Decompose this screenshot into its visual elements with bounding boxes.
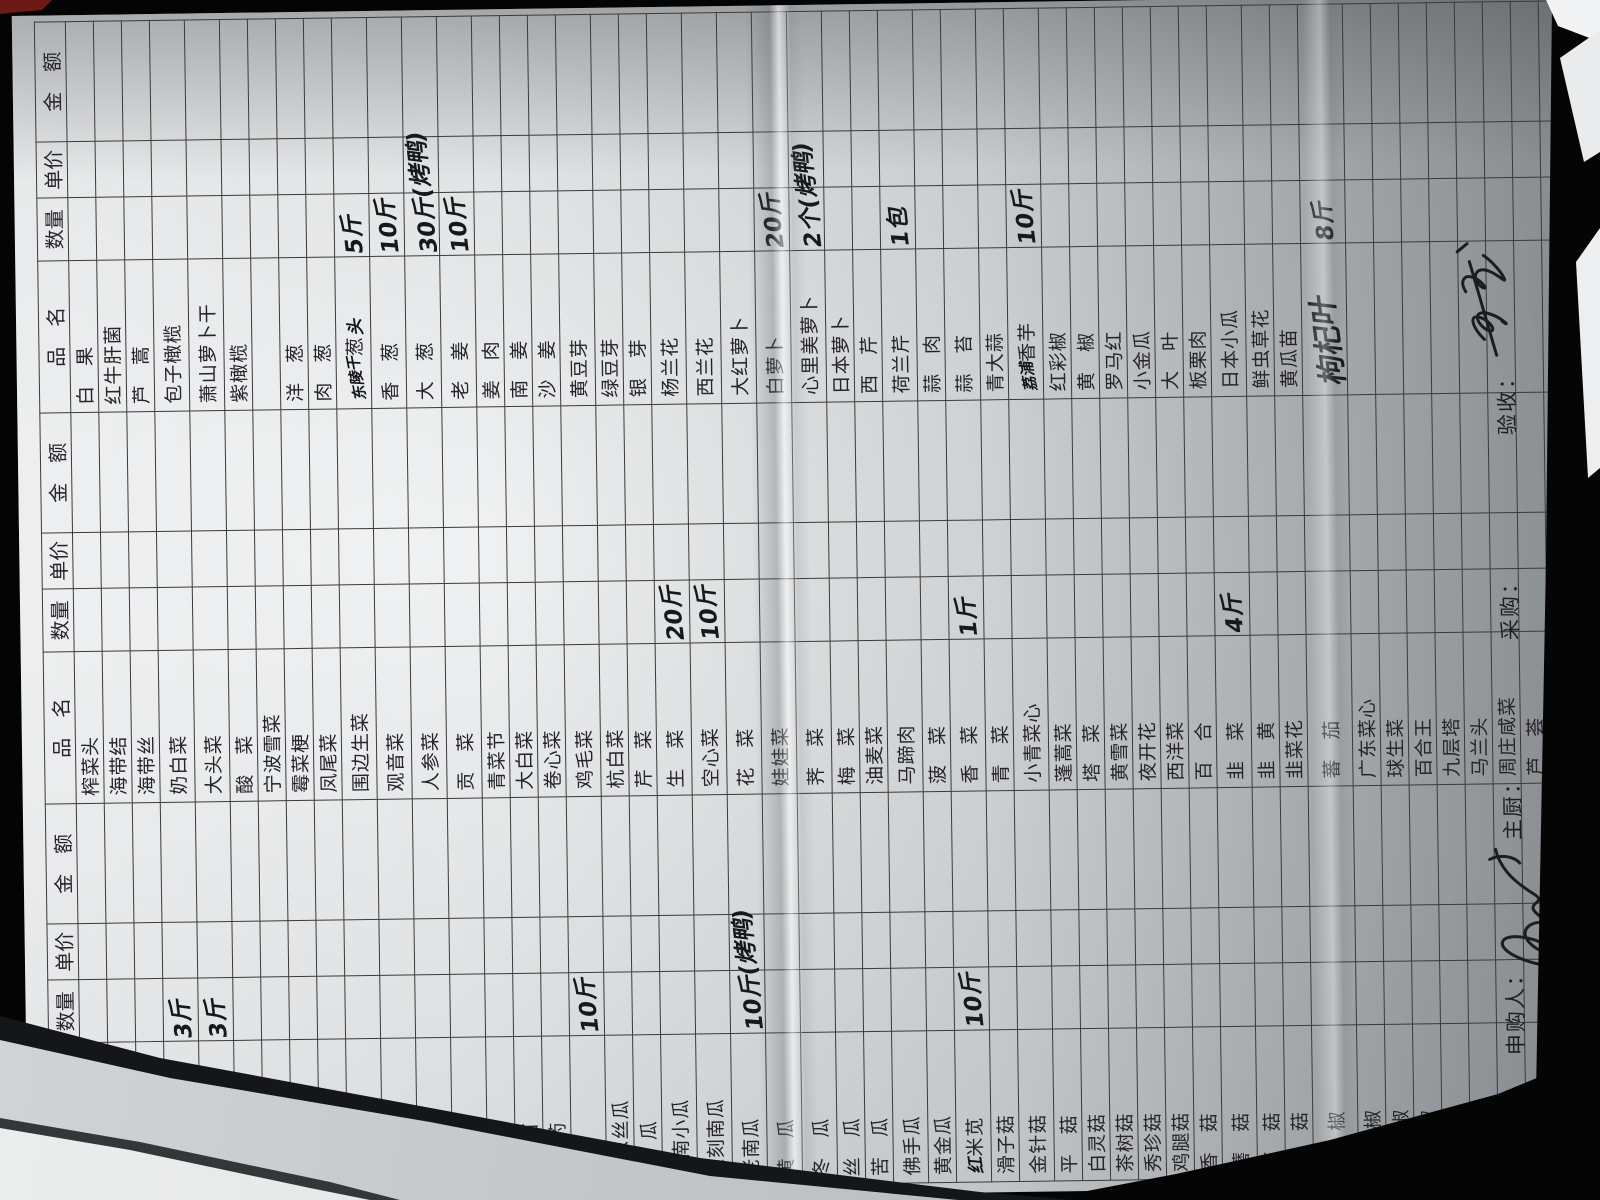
cell-price-left-11 [379,919,415,975]
cell-price-middle-11 [373,528,409,584]
cell-price-left-43 [1383,905,1412,961]
item-name: 红牛肝菌 [103,324,125,404]
cell-name-right-4: 包子橄榄 [153,259,190,411]
cell-price-left-40 [1282,906,1311,962]
cell-name-middle-16: 卷心菜 [536,645,566,797]
item-name: 刀豆 [356,1105,378,1183]
footer-label-inspector: 验收： [1491,366,1522,435]
cell-amount-middle-17 [561,405,598,525]
cell-price-right-19 [620,134,649,190]
cell-name-middle-36: 西洋菜 [1159,636,1189,788]
cell-qty-right-31: 10斤 [1006,184,1042,247]
cell-price-left-24 [799,913,835,969]
cell-name-middle-46: 马兰头 [1463,632,1493,784]
cell-price-left-39 [1254,907,1283,963]
cell-qty-right-24: 2个(烤鸭) [789,187,825,250]
footer-label-purchaser: 采购： [1494,571,1525,640]
cell-price-right-26 [851,130,880,186]
item-name: 老南瓜 [741,1118,763,1178]
cell-qty-left-34 [1108,965,1137,1028]
cell-price-middle-13 [443,527,479,583]
cell-amount-left-13 [447,798,484,918]
cell-qty-left-24 [800,969,836,1032]
cell-amount-middle-30 [981,400,1011,520]
cell-qty-left-23 [765,970,801,1033]
cell-qty-right-11: 10斤 [369,193,405,256]
cell-name-right-20: 杨兰花 [650,252,687,404]
cell-price-middle-20 [653,524,689,580]
cell-amount-right-9 [303,18,333,138]
cell-amount-middle-1 [71,412,101,532]
item-name: 大红萝卜 [730,316,752,396]
item-name: 榨菜头 [81,736,103,796]
item-name: 西芹 [859,316,881,394]
cell-qty-middle-29: 1斤 [948,576,984,639]
cell-name-middle-27: 马蹄肉 [886,640,923,792]
item-name: 黄椒 [1076,313,1098,391]
cell-amount-left-29 [951,791,988,911]
cell-qty-left-7 [261,977,290,1040]
cell-qty-right-27: 1包 [880,186,916,249]
cell-name-left-36: 鸡腿菇 [1165,1027,1195,1179]
cell-name-right-33: 黄椒 [1070,246,1100,398]
cell-amount-middle-38 [1212,396,1249,516]
cell-amount-left-44 [1409,785,1439,905]
handwritten-quantity: 8斤 [1302,200,1340,243]
item-name: 夜开花 [1138,721,1160,781]
cell-amount-right-34 [1094,7,1124,127]
item-name: 滑子菇 [996,1114,1018,1174]
cell-qty-left-6 [233,977,262,1040]
item-name: 周庄咸菜 [1497,696,1519,776]
item-name: 鲜虫草花 [1251,308,1273,388]
header-right-amount: 金 额 [34,22,67,142]
cell-name-right-43 [1374,242,1404,394]
cell-qty-left-15 [513,973,542,1036]
cell-name-left-34: 茶树菇 [1109,1028,1139,1180]
item-name: 蒜苔 [954,315,976,393]
cell-amount-right-5 [184,20,221,140]
cell-price-right-10 [333,137,369,193]
item-name: 云南小瓜 [670,1099,692,1179]
cell-qty-left-30 [989,967,1018,1030]
cell-qty-middle-3 [129,587,158,650]
cell-name-left-24: 冬瓜 [801,1032,838,1184]
header-left-amount: 金 额 [45,804,78,924]
cell-amount-middle-39 [1247,396,1277,516]
cell-price-left-2 [106,923,135,979]
cell-name-middle-39: 韭黄 [1250,635,1280,787]
cell-price-middle-7 [254,530,283,586]
cell-name-right-23: 白萝卜 [755,251,792,403]
cell-qty-left-43 [1384,961,1413,1024]
cell-name-left-3: 毛豆米 [136,1041,166,1193]
cell-amount-right-23 [751,12,788,132]
cell-name-right-22: 大红萝卜 [720,251,757,403]
header-left-price: 单价 [47,924,79,980]
cell-price-right-8 [277,138,306,194]
cell-price-middle-23 [758,523,794,579]
cell-price-left-20 [659,915,695,971]
cell-name-middle-33: 塔菜 [1075,637,1105,789]
item-name: 酸缸豆 [240,1125,262,1185]
cell-amount-middle-27 [883,401,920,521]
cell-price-middle-43 [1377,514,1406,570]
item-name: 鸡腿菇 [1171,1112,1193,1172]
cell-amount-left-45 [1437,784,1467,904]
cell-price-middle-12 [408,527,444,583]
cell-amount-middle-19 [624,405,654,525]
cell-name-middle-42: 广东菜心 [1351,633,1381,785]
cell-name-middle-35: 夜开花 [1131,636,1161,788]
cell-qty-left-3 [135,978,164,1041]
header-right-name: 品 名 [38,261,71,413]
cell-qty-left-14 [485,974,514,1037]
cell-qty-middle-17 [563,581,599,644]
cell-price-middle-41 [1304,515,1350,572]
cell-qty-left-21 [695,971,731,1034]
cell-amount-left-32 [1049,790,1079,910]
cell-qty-left-38 [1220,963,1256,1026]
cell-qty-left-11 [380,975,416,1038]
cell-qty-left-42 [1356,961,1385,1024]
cell-amount-right-36 [1150,6,1180,126]
cell-amount-middle-42 [1348,394,1378,514]
cell-name-right-31: 荔浦香芋 [1007,247,1044,399]
cell-price-middle-35 [1129,518,1158,574]
cell-price-left-38 [1219,907,1255,963]
cell-price-middle-3 [128,531,157,587]
item-name: 罗马红 [1104,330,1126,390]
item-name: 鸡毛菜 [574,729,596,789]
cell-amount-middle-41 [1303,395,1350,516]
item-name: 花菜 [735,709,757,787]
cell-amount-middle-26 [855,401,885,521]
cell-name-left-20: 云南小瓜 [661,1034,698,1186]
cell-qty-middle-35 [1130,573,1159,636]
cell-qty-right-21 [684,189,720,252]
item-name: 银芽 [628,319,650,397]
cell-amount-right-48 [1510,1,1540,121]
item-name: 杨兰花 [660,337,682,397]
cell-qty-middle-10 [339,584,375,647]
handwritten-quantity: 20斤 [750,192,790,251]
cell-amount-right-1 [65,21,95,141]
item-name: 米苋 [965,1116,987,1156]
cell-amount-middle-18 [596,405,626,525]
cell-price-middle-38 [1213,516,1249,572]
cell-name-left-8: 小土豆 [290,1039,320,1191]
cell-qty-middle-6 [227,586,256,649]
cell-qty-middle-15 [507,582,536,645]
cell-name-left-18: 广东丝瓜 [605,1035,635,1187]
cell-price-right-31 [1005,128,1041,184]
item-name: 蓬蒿菜 [1054,722,1076,782]
item-name: 海带丝 [137,735,159,795]
cell-price-right-1 [67,141,96,197]
cell-qty-middle-46 [1462,569,1491,632]
item-name: 芦蒿 [131,326,153,404]
cell-price-left-17 [568,916,604,972]
cell-amount-left-26 [860,792,890,912]
item-name: 青豆板 [391,1122,413,1182]
item-name: 马蹄肉 [896,724,918,784]
cell-name-right-2: 红牛肝菌 [97,260,127,412]
cell-qty-right-35 [1125,183,1154,246]
item-name: 小土豆 [296,1124,318,1184]
cell-qty-middle-4 [157,587,193,650]
handwritten-quantity: 1包 [877,206,915,249]
cell-qty-middle-27 [885,577,921,640]
item-name: 茭白 [492,1103,514,1181]
cell-amount-middle-4 [155,411,192,531]
cell-price-right-38 [1208,125,1244,181]
item-name: 雕刻南瓜 [705,1098,727,1178]
cell-amount-right-20 [646,13,683,133]
item-name: 大头菜 [203,734,225,794]
cell-price-middle-44 [1405,514,1434,570]
cell-price-middle-6 [226,530,255,586]
item-name: 豆苗 [520,1103,542,1181]
item-name: 奶白菜 [168,735,190,795]
cell-price-middle-30 [982,520,1011,576]
cell-qty-middle-33 [1074,574,1103,637]
cell-qty-middle-1 [73,588,102,651]
cell-amount-middle-10 [337,408,374,528]
cell-name-right-19: 银芽 [622,253,652,405]
cell-name-right-44 [1402,242,1432,394]
cell-name-right-12: 大葱 [405,255,442,407]
cell-amount-right-17 [555,14,592,134]
cell-name-middle-40: 韭菜花 [1278,634,1308,786]
cell-qty-left-18 [604,972,633,1035]
cell-price-right-46 [1456,122,1485,178]
cell-qty-left-1 [79,979,108,1042]
item-name: 秀珍菇 [1143,1112,1165,1172]
cell-name-middle-17: 鸡毛菜 [564,644,601,796]
cell-amount-middle-25 [827,402,857,522]
item-name: 包子橄榄 [163,324,185,404]
handwritten-quantity: 10斤 [435,196,475,255]
cell-qty-left-39 [1255,963,1284,1026]
cell-amount-right-41 [1297,4,1344,125]
header-right-price: 单价 [36,142,68,198]
item-name: 生菜 [665,710,687,788]
cell-qty-right-41: 8斤 [1300,180,1346,244]
item-name: 菠菜 [927,706,949,784]
cell-amount-right-15 [499,15,529,135]
cell-amount-left-19 [629,796,659,916]
cell-price-left-14 [484,918,513,974]
cell-name-left-33: 白灵菇 [1081,1028,1111,1180]
cell-price-right-35 [1124,127,1153,183]
item-name: 萧山萝卜干 [197,303,219,403]
cell-price-middle-25 [828,522,857,578]
cell-price-right-32 [1040,128,1069,184]
item-name: 紫橄榄 [229,343,251,403]
cell-name-left-19: 地瓜 [633,1034,663,1186]
cell-name-left-15: 豆苗 [514,1036,544,1188]
cell-amount-right-30 [975,9,1005,129]
cell-qty-right-43 [1373,179,1402,242]
cell-amount-middle-3 [127,411,157,531]
cell-price-middle-2 [100,532,129,588]
cell-amount-left-1 [76,803,106,923]
item-name: 青菜节 [487,730,509,790]
cell-name-right-25: 日本萝卜 [825,250,855,402]
cell-qty-right-10: 5斤 [334,193,370,256]
cell-price-right-20 [648,133,684,189]
cell-amount-middle-33 [1072,398,1102,518]
cell-amount-middle-24 [792,402,829,522]
cell-name-middle-22: 花菜 [725,642,762,794]
order-form-paper: 品 名数量单价金 额品 名数量单价金 额品 名数量单价金 额榨菜头白果节海带结红… [12,0,1588,1200]
cell-qty-left-2 [107,979,136,1042]
cell-amount-right-21 [681,13,718,133]
item-name: 百合 [1193,702,1215,780]
cell-name-right-11: 香葱 [370,256,407,408]
cell-amount-left-38 [1217,787,1254,907]
cell-qty-middle-28 [920,576,949,639]
cell-amount-middle-28 [918,400,948,520]
cell-price-right-47 [1484,122,1513,178]
handwritten-suffix: 头 [340,317,367,338]
cell-name-right-27: 荷兰芹 [881,249,918,401]
cell-qty-left-31 [1017,966,1053,1029]
cell-name-left-25: 丝瓜 [836,1032,866,1184]
cell-qty-right-36 [1153,182,1182,245]
cell-qty-right-19 [621,190,650,253]
cell-amount-middle-11 [372,408,409,528]
cell-price-left-45 [1439,904,1468,960]
handwritten-quantity: 4斤 [1212,592,1250,635]
cell-price-left-26 [862,912,891,968]
item-name: 黄雪菜 [1110,721,1132,781]
item-name: 油麦菜 [865,725,887,785]
cell-amount-left-37 [1189,788,1219,908]
cell-qty-left-27 [891,968,927,1031]
cell-name-right-5: 萧山萝卜干 [188,259,225,411]
cell-price-right-9 [305,138,334,194]
cell-name-right-40: 黄瓜苗 [1273,243,1303,395]
cell-price-left-4 [162,922,198,978]
cell-qty-left-44 [1412,961,1441,1024]
cell-amount-right-28 [912,9,942,129]
cell-name-middle-34: 黄雪菜 [1103,637,1133,789]
cell-qty-middle-39 [1249,572,1278,635]
handwritten-quantity: 3斤 [195,997,233,1040]
cell-name-middle-38: 韭菜 [1215,635,1252,787]
cell-qty-middle-16 [535,582,564,645]
cell-qty-middle-34 [1102,574,1131,637]
cell-price-right-39 [1243,125,1272,181]
cell-name-right-6: 紫橄榄 [223,258,253,410]
cell-name-left-13: 草头 [451,1037,488,1189]
cell-qty-middle-7 [255,586,284,649]
handwritten-item-name: 枸杞叶 [1298,295,1354,390]
cell-price-right-36 [1152,126,1181,182]
cell-price-right-17 [557,134,593,190]
cell-amount-left-20 [657,795,694,915]
cell-price-middle-26 [856,521,885,577]
cell-name-right-8: 洋葱 [279,257,309,409]
cell-qty-middle-18 [598,581,627,644]
order-table: 品 名数量单价金 额品 名数量单价金 额品 名数量单价金 额榨菜头白果节海带结红… [34,0,1600,1196]
cell-amount-middle-29 [946,400,983,520]
cell-name-middle-41: 蕃茄 [1306,634,1353,787]
item-name: 毛豆米 [142,1126,164,1186]
header-right-qty: 数量 [37,198,69,261]
item-name: 茶树菇 [1115,1112,1137,1172]
item-name: 小青菜心 [1022,703,1044,783]
item-name: 大白菜 [515,730,537,790]
cell-price-right-7 [249,139,278,195]
item-name: 冬瓜 [810,1099,832,1177]
cell-price-right-33 [1068,127,1097,183]
cell-name-left-9: 缸豆 [318,1039,348,1191]
cell-amount-right-8 [275,18,305,138]
cell-price-middle-5 [191,531,227,587]
cell-qty-left-5: 3斤 [198,977,234,1040]
cell-price-middle-4 [156,531,192,587]
cell-qty-left-37 [1192,964,1221,1027]
cell-name-right-30: 青大蒜 [979,248,1009,400]
cell-qty-right-8 [278,194,307,257]
cell-price-middle-45 [1433,513,1462,569]
item-name: 观音菜 [385,731,407,791]
cell-price-left-3 [134,922,163,978]
cell-price-left-16 [540,917,569,973]
item-name: 黄瓜 [775,1099,797,1177]
cell-amount-left-9 [314,800,344,920]
cell-qty-right-42 [1345,179,1374,242]
photo-scene: 品 名数量单价金 额品 名数量单价金 额品 名数量单价金 额榨菜头白果节海带结红… [0,0,1600,1200]
cell-qty-right-40 [1272,180,1301,243]
cell-qty-middle-42 [1350,570,1379,633]
cell-name-middle-11: 观音菜 [375,647,412,799]
cell-amount-left-3 [132,802,162,922]
item-name: 老姜 [450,322,472,400]
cell-qty-left-29: 10斤 [954,967,990,1030]
cell-price-left-6 [232,921,261,977]
cell-name-right-13: 老姜 [440,255,477,407]
cell-qty-right-26 [852,186,881,249]
cell-price-right-18 [592,134,621,190]
cell-name-left-29: 红米苋 [955,1030,992,1182]
item-name: 韭菜花 [1285,719,1307,779]
cell-amount-left-24 [797,793,834,913]
cell-price-right-5 [186,140,222,196]
cell-amount-right-43 [1370,3,1400,123]
cell-qty-right-4 [152,196,188,259]
cell-qty-left-45 [1440,960,1469,1023]
cell-amount-left-31 [1014,790,1051,910]
cell-price-right-45 [1428,122,1457,178]
cell-qty-left-25 [835,969,864,1032]
cell-price-left-23 [764,914,800,970]
cell-qty-right-15 [502,191,531,254]
handwritten-quantity: 1斤 [946,596,984,639]
cell-qty-middle-41 [1305,571,1351,635]
cell-amount-left-42 [1353,785,1383,905]
cell-qty-middle-43 [1378,570,1407,633]
cell-price-left-37 [1191,908,1220,964]
cell-name-middle-31: 小青菜心 [1012,638,1049,790]
cell-name-middle-47: 周庄咸菜 [1491,631,1521,783]
cell-amount-right-4 [149,20,186,140]
cell-name-middle-18: 杭白菜 [599,644,629,796]
cell-qty-right-6 [222,195,251,258]
